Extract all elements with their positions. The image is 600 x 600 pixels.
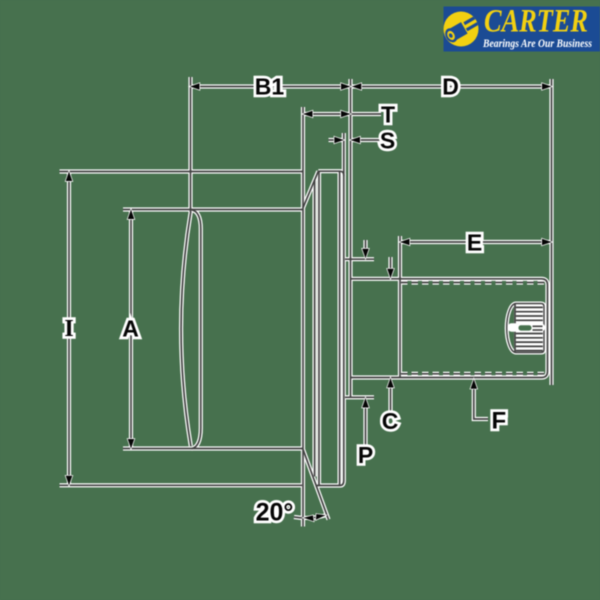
svg-text:A: A — [122, 316, 139, 342]
svg-text:D: D — [442, 74, 459, 100]
svg-text:P: P — [358, 442, 373, 468]
svg-text:E: E — [467, 230, 482, 256]
svg-text:T: T — [381, 102, 395, 128]
svg-text:F: F — [492, 408, 507, 435]
svg-text:20°: 20° — [256, 499, 294, 527]
svg-text:Bearings Are Our Business: Bearings Are Our Business — [482, 36, 592, 50]
svg-text:I: I — [64, 316, 73, 342]
svg-text:CARTER: CARTER — [484, 4, 588, 40]
svg-text:B1: B1 — [255, 74, 285, 100]
svg-text:C: C — [382, 408, 399, 434]
svg-text:S: S — [380, 128, 395, 154]
